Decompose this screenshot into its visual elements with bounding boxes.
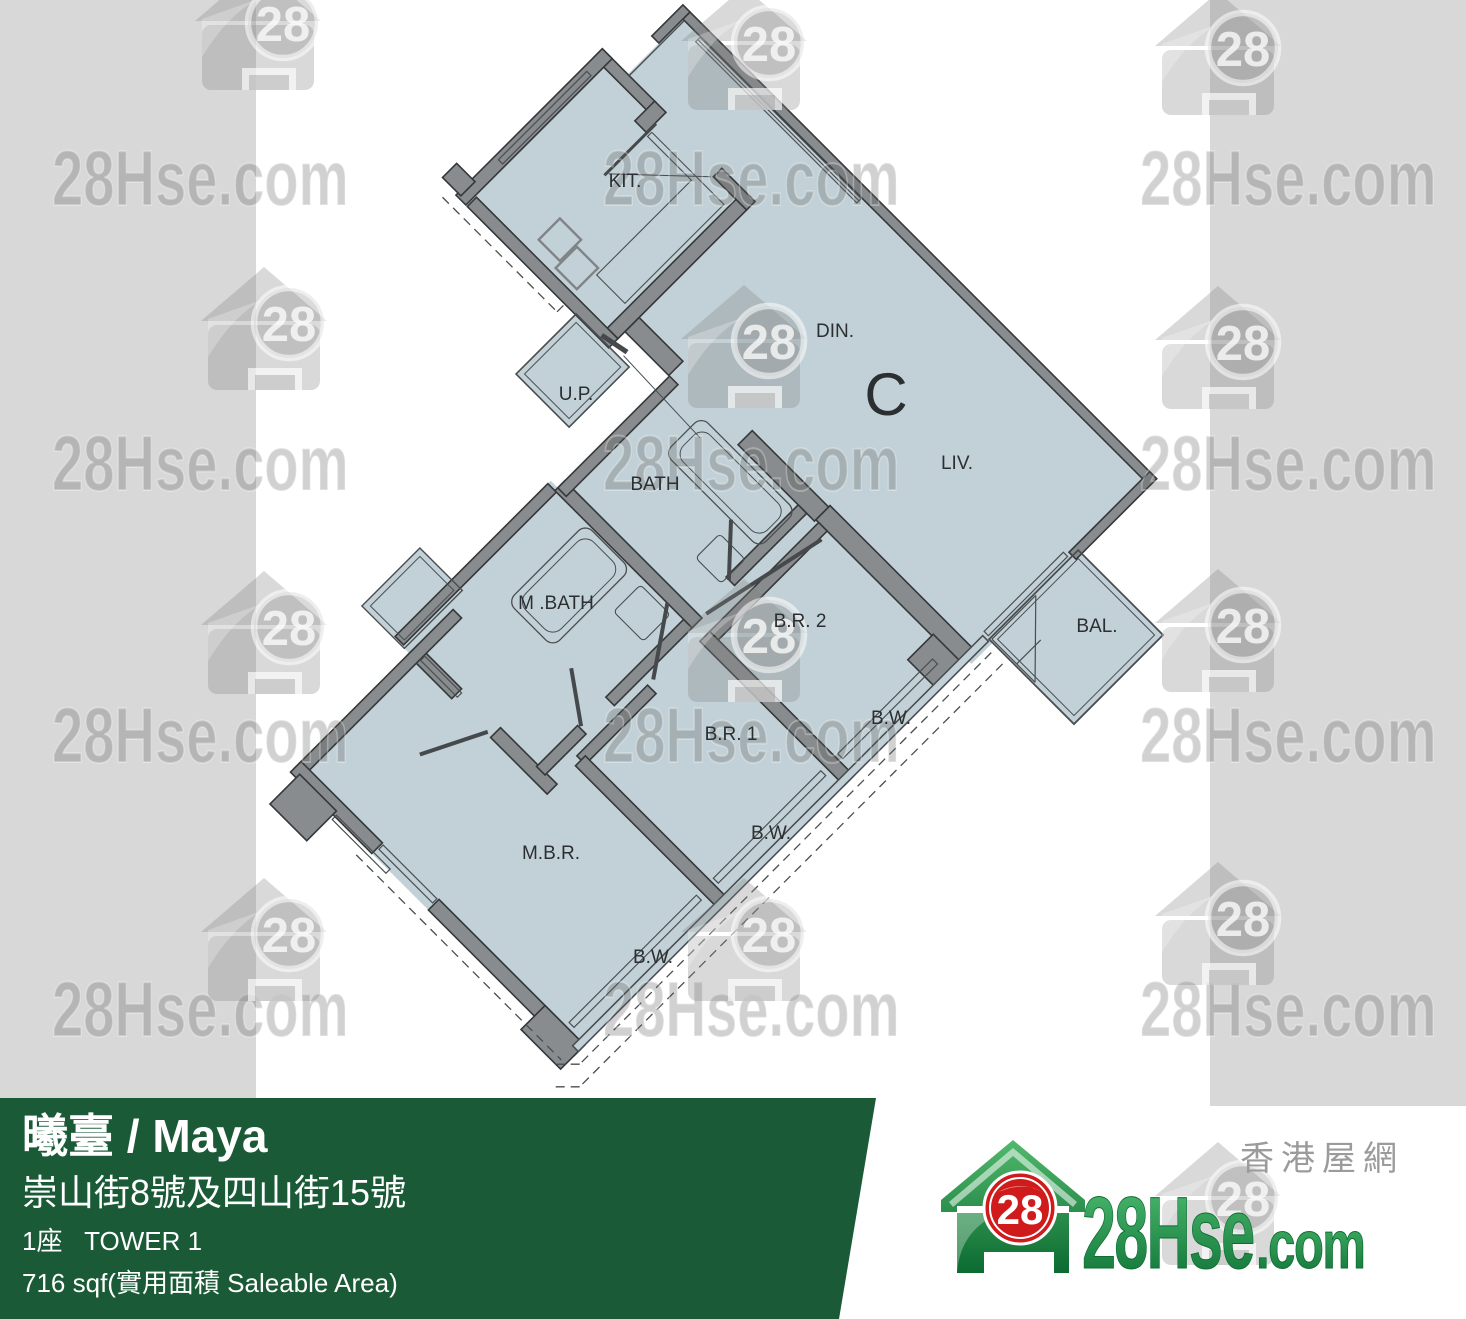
svg-text:28Hse.com: 28Hse.com [52, 420, 349, 507]
svg-text:28Hse.com: 28Hse.com [52, 135, 349, 222]
svg-text:B.W.: B.W. [751, 823, 791, 844]
svg-text:LIV.: LIV. [941, 453, 973, 474]
svg-text:曦臺 / Maya: 曦臺 / Maya [22, 1110, 268, 1162]
svg-text:.com: .com [1256, 1206, 1364, 1283]
svg-text:28: 28 [997, 1186, 1044, 1233]
svg-text:BAL.: BAL. [1076, 616, 1117, 637]
svg-text:BATH: BATH [630, 474, 679, 495]
svg-text:28Hse.com: 28Hse.com [52, 692, 349, 779]
svg-text:KIT.: KIT. [609, 171, 642, 192]
svg-text:B.W.: B.W. [633, 947, 673, 968]
svg-text:DIN.: DIN. [816, 321, 854, 342]
svg-text:B.W.: B.W. [871, 708, 911, 729]
svg-text:716 sqf(實用面積 Saleable Area): 716 sqf(實用面積 Saleable Area) [22, 1268, 398, 1298]
svg-text:B.R. 1: B.R. 1 [705, 724, 758, 745]
svg-text:M.B.R.: M.B.R. [522, 843, 580, 864]
svg-text:28Hse.com: 28Hse.com [1140, 135, 1437, 222]
svg-text:28Hse: 28Hse [1082, 1176, 1253, 1290]
svg-text:C: C [864, 361, 907, 428]
svg-text:28Hse.com: 28Hse.com [603, 135, 900, 222]
svg-text:M .BATH: M .BATH [518, 593, 594, 614]
svg-text:崇山街8號及四山街15號: 崇山街8號及四山街15號 [22, 1172, 406, 1213]
svg-text:1座 TOWER 1: 1座 TOWER 1 [22, 1226, 202, 1256]
svg-text:28Hse.com: 28Hse.com [1140, 692, 1437, 779]
svg-text:28Hse.com: 28Hse.com [1140, 420, 1437, 507]
svg-text:香港屋網: 香港屋網 [1240, 1140, 1404, 1178]
svg-text:U.P.: U.P. [559, 384, 594, 405]
svg-text:B.R. 2: B.R. 2 [774, 611, 827, 632]
